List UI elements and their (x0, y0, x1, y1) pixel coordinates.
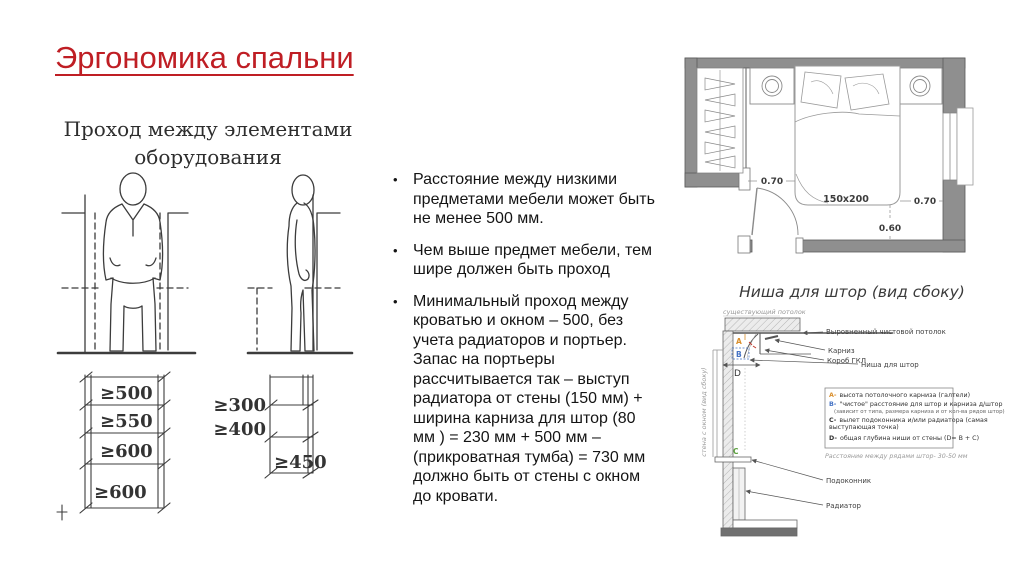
bullet-list: • Расстояние между низкими предметами ме… (393, 170, 661, 518)
letter-b: B (736, 350, 742, 359)
nightstand-right (898, 68, 942, 104)
legend-text: высота потолочного карниза (галтели) (840, 392, 971, 399)
dim-label: ≥300 (213, 395, 266, 416)
dim-right-label: 0.70 (914, 197, 936, 207)
callout-cornice: Карниз (828, 347, 855, 355)
dim-bottom-label: 0.60 (879, 224, 901, 234)
curtain-rows-note: Расстояние между рядами штор- 30-50 мм (825, 453, 968, 460)
svg-text:D- общая глубина ниш: D- общая глубина ниши от стены (D= B + C… (829, 434, 979, 442)
wardrobe (697, 68, 746, 173)
legend-letter: C- (829, 417, 837, 424)
legend-text: общая глубина ниши от стены (D= B + C) (840, 434, 979, 442)
bullet-marker: • (393, 292, 413, 507)
legend-subtext: выступающая точка) (829, 424, 899, 431)
window-glazing (713, 350, 723, 457)
floor-plan-svg: 150x200 0.70 0.70 0.60 (683, 52, 1013, 257)
letter-d: D (734, 369, 741, 379)
door-jamb (796, 238, 803, 253)
human-figure-front (103, 173, 162, 351)
window-sill (715, 457, 751, 462)
legend-letter: A- (829, 392, 837, 399)
legend-subtext: (зависит от типа, размера карниза и от к… (834, 409, 1005, 415)
letter-c: C (733, 447, 739, 456)
callout-radiator: Радиатор (826, 502, 862, 510)
dimension-ladder-right: ≥300 ≥400 ≥450 (213, 375, 326, 478)
wall-side-label: стена с окном (вид сбоку) (700, 367, 708, 456)
plan-door (752, 188, 798, 235)
callout-niche: Ниша для штор (861, 361, 919, 369)
bullet-text: Расстояние между низкими предметами мебе… (413, 170, 661, 229)
plan-window (943, 108, 973, 185)
letter-a: A (736, 337, 742, 346)
cornice-mark (765, 336, 778, 339)
passage-diagram: Проход между элементами оборудования (48, 108, 378, 543)
dim-label: ≥550 (100, 411, 153, 432)
slide: Эргономика спальни Проход между элемента… (0, 0, 1024, 574)
dimension-ladder-left: ≥500 ≥550 ≥600 ≥600 (57, 372, 170, 520)
door-jamb (738, 236, 750, 253)
nightstand-left (750, 68, 794, 104)
floor-plan: 150x200 0.70 0.70 0.60 (683, 52, 1013, 257)
legend-letter: B- (829, 401, 837, 408)
bullet-marker: • (393, 241, 413, 280)
human-figure-profile (287, 175, 315, 351)
list-item: • Минимальный проход между кроватью и ок… (393, 292, 661, 507)
curtain-niche-svg: Ниша для штор (вид сбоку) существующий п… (683, 262, 1023, 574)
dim-label: ≥500 (100, 383, 153, 404)
left-furniture-lines (58, 195, 195, 353)
dim-label: ≥600 (100, 441, 153, 462)
callout-sill: Подоконник (826, 477, 871, 485)
page-title: Эргономика спальни (55, 40, 354, 76)
bullet-marker: • (393, 170, 413, 229)
existing-ceiling-label: существующий потолок (723, 308, 806, 316)
floor-bar (721, 528, 797, 536)
floor-slab (733, 520, 797, 528)
list-item: • Расстояние между низкими предметами ме… (393, 170, 661, 229)
curtain-niche-title: Ниша для штор (вид сбоку) (739, 283, 965, 301)
svg-text:B- "чистое" расстоян: B- "чистое" расстояние для штор и карниз… (829, 401, 1002, 408)
list-item: • Чем выше предмет мебели, тем шире долж… (393, 241, 661, 280)
legend-box: A- высота потолочного карниза (галтели) … (825, 388, 1005, 448)
bed (795, 66, 900, 205)
dim-label: ≥450 (274, 452, 327, 473)
bullet-text: Минимальный проход между кроватью и окно… (413, 292, 661, 507)
legend-text: вылет подоконника и/или радиатора (самая (839, 417, 987, 424)
curtain-curve (744, 334, 758, 358)
curtain-niche-diagram: Ниша для штор (вид сбоку) существующий п… (683, 262, 1023, 574)
legend-text: "чистое" расстояние для штор и карниза д… (839, 401, 1002, 408)
passage-diagram-svg: Проход между элементами оборудования (48, 108, 378, 543)
bullet-text: Чем выше предмет мебели, тем шире должен… (413, 241, 661, 280)
passage-diagram-title-line2: оборудования (134, 145, 282, 169)
bed-size-label: 150x200 (823, 194, 869, 205)
legend-letter: D- (829, 435, 837, 442)
window-wall (723, 331, 733, 528)
dim-label: ≥400 (213, 419, 266, 440)
passage-diagram-title-line1: Проход между элементами (64, 117, 353, 141)
svg-text:C- вылет подоконника: C- вылет подоконника и/или радиатора (са… (829, 417, 988, 424)
svg-text:A- высота потолочног: A- высота потолочного карниза (галтели) (829, 392, 970, 399)
dim-left-label: 0.70 (761, 177, 783, 187)
dim-label: ≥600 (94, 482, 147, 503)
callout-finish-ceiling: Выровненный чистовой потолок (826, 328, 946, 336)
